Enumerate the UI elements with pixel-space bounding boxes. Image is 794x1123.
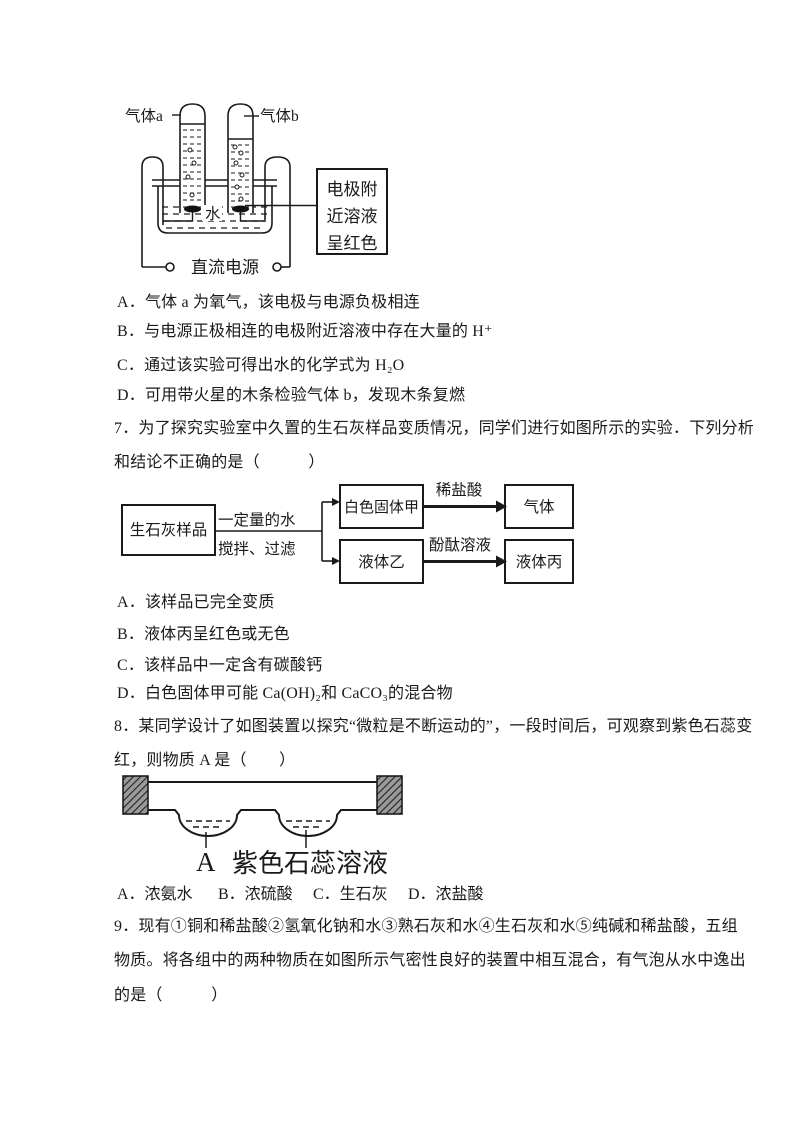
q6-option-b: B．与电源正极相连的电极附近溶液中存在大量的 H⁺	[117, 322, 493, 342]
electrode-left	[184, 206, 201, 213]
note-line-2: 近溶液	[327, 207, 378, 226]
q7-stem-line-2: 和结论不正确的是（ ）	[114, 453, 325, 473]
q7-stem-line-1: 7．为了探究实验室中久置的生石灰样品变质情况，同学们进行如图所示的实验．下列分析	[114, 419, 754, 439]
q9-stem-line-3: 的是（ ）	[114, 986, 227, 1006]
electrolysis-figure: 水 气体a 气体b 电极附 近溶液 呈红色 直流电源	[120, 95, 400, 285]
terminal-right	[273, 263, 281, 271]
q8-option-b: B．浓硫酸	[218, 885, 293, 905]
litmus-label: 紫色石蕊溶液	[232, 849, 388, 878]
note-line-3: 呈红色	[327, 234, 378, 253]
gas-a-label: 气体a	[125, 107, 163, 125]
q8-option-c: C．生石灰	[313, 885, 388, 905]
sample-box-label: 生石灰样品	[130, 521, 208, 539]
q6-option-c: C．通过该实验可得出水的化学式为 H₂O	[117, 356, 404, 376]
liquid-b-box-label: 液体乙	[358, 553, 405, 571]
solid-box-label: 白色固体甲	[344, 499, 419, 516]
q9-stem-line-1: 9．现有①铜和稀盐酸②氢氧化钠和水③熟石灰和水④生石灰和水⑤纯碱和稀盐酸，五组	[114, 917, 738, 937]
liquid-c-box-label: 液体丙	[516, 553, 563, 571]
cork-right	[377, 776, 402, 814]
litmus-tube-figure: A 紫色石蕊溶液	[118, 770, 408, 882]
worksheet-page: 水 气体a 气体b 电极附 近溶液 呈红色 直流电源 A．气体 a 为氧气，该电…	[0, 0, 794, 1123]
wire-left	[142, 157, 163, 267]
branch-arrow-bottom	[332, 557, 340, 565]
q7-option-d: D．白色固体甲可能 Ca(OH)₂和 CaCO₃的混合物	[117, 684, 453, 704]
electrode-right	[232, 206, 249, 213]
phenolphthalein-label: 酚酞溶液	[429, 536, 491, 554]
q6-option-d: D．可用带火星的木条检验气体 b，发现木条复燃	[117, 386, 465, 406]
substance-a-label: A	[196, 847, 216, 877]
q8-stem-line-2: 红，则物质 A 是（ ）	[114, 751, 295, 771]
gas-b-label: 气体b	[260, 107, 299, 125]
q7-option-a: A．该样品已完全变质	[117, 593, 275, 613]
branch-arrow-top	[332, 498, 340, 506]
tube-bottom-with-dishes	[148, 810, 377, 836]
quicklime-flowchart-figure: 生石灰样品 一定量的水 搅拌、过滤 白色固体甲 稀盐酸 气体 液体乙 酚酞溶液 …	[115, 478, 585, 590]
q8-option-d: D．浓盐酸	[408, 885, 484, 905]
cork-left	[123, 776, 148, 814]
wire-right	[265, 157, 290, 267]
q7-option-b: B．液体丙呈红色或无色	[117, 625, 290, 645]
q9-stem-line-2: 物质。将各组中的两种物质在如图所示气密性良好的装置中相互混合，有气泡从水中逸出	[114, 951, 746, 971]
acid-label: 稀盐酸	[436, 481, 483, 499]
process-label-top: 一定量的水	[218, 511, 296, 529]
water-label: 水	[205, 205, 221, 223]
terminal-left	[166, 263, 174, 271]
gas-box-label: 气体	[523, 498, 555, 516]
q8-option-a: A．浓氨水	[117, 885, 193, 905]
power-label: 直流电源	[191, 258, 259, 277]
q8-stem-line-1: 8．某同学设计了如图装置以探究“微粒是不断运动的”，一段时间后，可观察到紫色石蕊…	[114, 717, 752, 737]
note-line-1: 电极附	[327, 180, 378, 199]
process-label-bottom: 搅拌、过滤	[218, 540, 296, 558]
q7-option-c: C．该样品中一定含有碳酸钙	[117, 656, 322, 676]
q6-option-a: A．气体 a 为氧气，该电极与电源负极相连	[117, 293, 420, 313]
dish-liquid-dashes	[186, 821, 330, 827]
